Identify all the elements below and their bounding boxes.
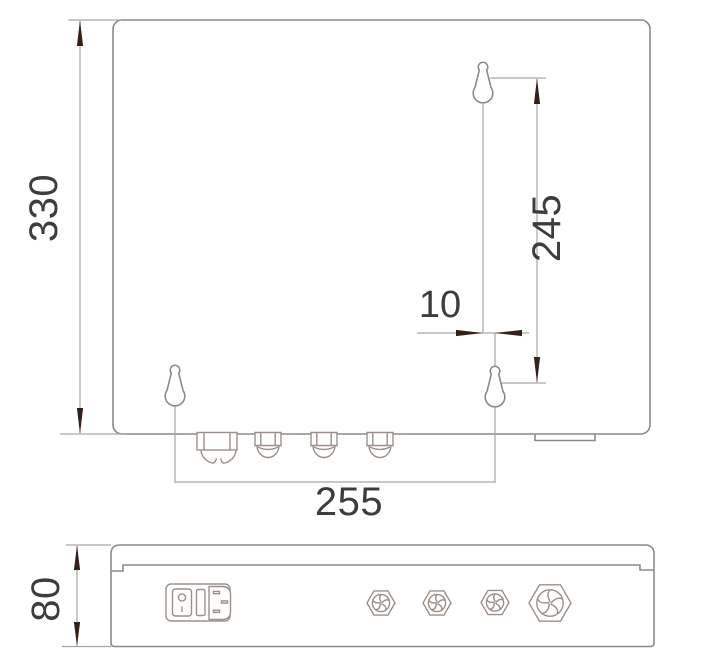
cable-gland-face-3 xyxy=(481,590,509,614)
enclosure-front-outline xyxy=(113,20,650,434)
dimension-lines-bottom xyxy=(62,545,111,647)
cable-gland-face-2 xyxy=(423,591,451,615)
cable-gland-side-large xyxy=(197,433,237,464)
bottom-view: 80 xyxy=(24,545,654,647)
dimension-drawing: 330 245 10 255 xyxy=(0,0,727,662)
dim-label-depth: 80 xyxy=(24,576,68,622)
cable-glands-side-view xyxy=(197,433,393,464)
cable-gland-side-3 xyxy=(367,433,393,458)
cable-gland-face-1 xyxy=(367,591,395,615)
fuse-holder xyxy=(197,590,206,616)
cable-gland-side-2 xyxy=(311,433,337,458)
power-entry-module xyxy=(166,584,231,621)
dim-label-hole-spacing-horizontal: 255 xyxy=(315,480,383,524)
dim-label-height: 330 xyxy=(22,174,66,242)
cable-gland-side-1 xyxy=(255,433,281,458)
bottom-edge-tab xyxy=(535,435,595,441)
front-view: 330 245 10 255 xyxy=(22,20,650,524)
dim-label-hole-offset: 10 xyxy=(419,284,461,326)
technical-drawing-page: 330 245 10 255 xyxy=(0,0,727,662)
dim-label-hole-spacing-vertical: 245 xyxy=(525,194,569,262)
